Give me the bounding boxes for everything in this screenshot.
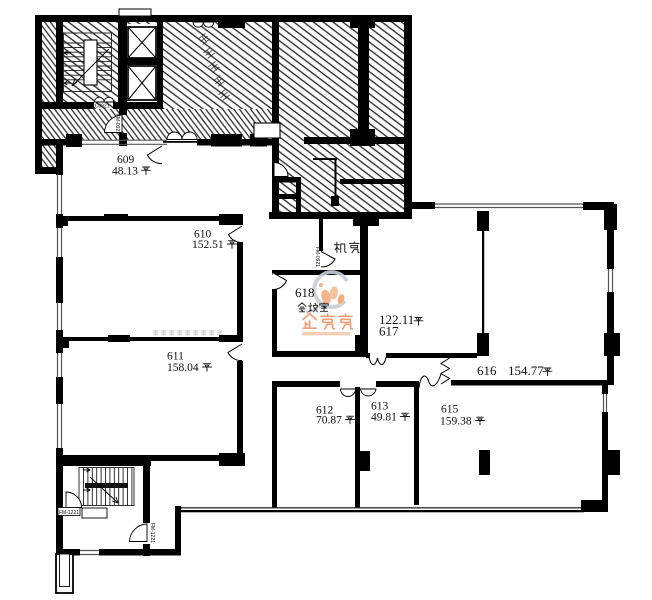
svg-text:615: 615 [441,404,459,416]
svg-text:FM-1221: FM-1221 [59,510,79,516]
svg-text:616: 616 [477,363,497,378]
svg-text:FM-0921: FM-0921 [114,114,120,134]
svg-text:LC0921: LC0921 [92,104,110,110]
svg-text:618: 618 [295,285,315,300]
svg-text:FM-0921: FM-0921 [314,247,320,267]
svg-text:154.77: 154.77 [508,363,544,378]
svg-text:158.04: 158.04 [167,362,199,374]
svg-text:609: 609 [117,154,135,166]
svg-text:152.51: 152.51 [192,239,224,251]
svg-text:70.87: 70.87 [316,415,342,427]
svg-text:48.13: 48.13 [112,166,138,178]
svg-text:611: 611 [167,351,184,363]
svg-text:159.38: 159.38 [440,416,472,428]
svg-text:617: 617 [379,324,399,339]
svg-text:49.81: 49.81 [371,412,397,424]
svg-text:FM-1221: FM-1221 [149,523,155,543]
